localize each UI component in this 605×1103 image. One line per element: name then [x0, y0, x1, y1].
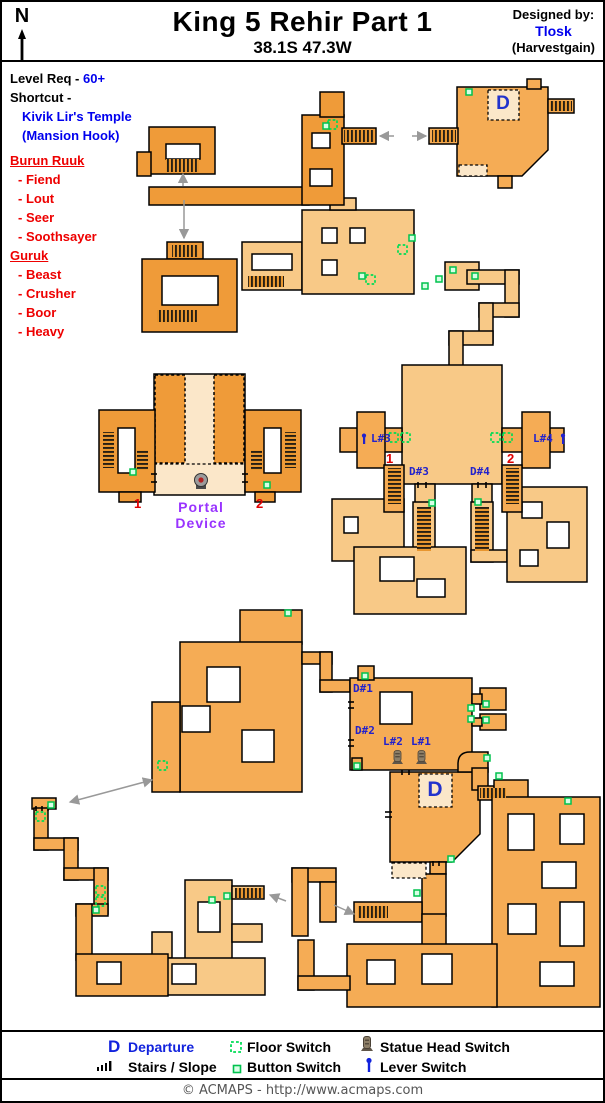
button-switch-icon	[450, 267, 456, 273]
landing-area	[392, 863, 426, 878]
legend-stairs-icon	[96, 1060, 114, 1076]
button-switch-icon	[466, 89, 472, 95]
dungeon-map	[2, 62, 605, 1032]
button-switch-icon	[468, 716, 474, 722]
door-label-d3: D#3	[409, 465, 429, 478]
legend-button-switch-icon	[232, 1061, 242, 1077]
button-switch-icon	[48, 802, 54, 808]
stairs-icon	[285, 432, 296, 468]
legend-floor-switch-label: Floor Switch	[247, 1039, 331, 1055]
departure-label-bottom: D	[418, 778, 452, 802]
legend-lever-switch-icon	[364, 1057, 374, 1076]
departure-label-top: D	[487, 93, 519, 115]
button-switch-icon	[483, 701, 489, 707]
stairs-icon	[235, 888, 263, 898]
button-switch-icon	[130, 469, 136, 475]
door-label-d1: D#1	[353, 682, 373, 695]
stairs-icon	[103, 432, 114, 468]
button-switch-icon	[429, 500, 435, 506]
button-switch-icon	[354, 763, 360, 769]
button-switch-icon	[285, 610, 291, 616]
button-switch-icon	[359, 273, 365, 279]
button-switch-icon	[496, 773, 502, 779]
button-switch-icon	[409, 235, 415, 241]
statue-head-icon	[416, 751, 427, 765]
stairs-icon	[137, 450, 148, 470]
stairs-icon	[251, 450, 262, 470]
button-switch-icon	[483, 717, 489, 723]
lever-label-l2: L#2	[383, 735, 403, 748]
marker-1: 1	[134, 496, 141, 511]
header: N King 5 Rehir Part 1 38.1S 47.3W Design…	[2, 2, 603, 62]
stairs-icon	[432, 130, 456, 142]
legend-floor-switch-icon	[230, 1040, 242, 1056]
lever-label-l4: L#4	[533, 432, 553, 445]
legend-lever-switch-label: Lever Switch	[380, 1059, 466, 1075]
legend-statue-head-label: Statue Head Switch	[380, 1039, 510, 1055]
stairs-icon	[550, 101, 572, 111]
landing-area	[459, 165, 487, 176]
button-switch-icon	[475, 499, 481, 505]
button-switch-icon	[422, 283, 428, 289]
legend-departure-label: Departure	[128, 1039, 194, 1055]
stairs-icon	[480, 788, 506, 798]
button-switch-icon	[472, 273, 478, 279]
stairs-icon	[248, 276, 284, 287]
door-label-d2: D#2	[355, 724, 375, 737]
button-switch-icon	[468, 705, 474, 711]
portal-device-icon	[195, 474, 208, 490]
button-switch-icon	[362, 673, 368, 679]
designer-block: Designed by: Tlosk (Harvestgain)	[512, 7, 595, 56]
stairs-icon	[172, 245, 198, 257]
legend-stairs-label: Stairs / Slope	[128, 1059, 217, 1075]
button-switch-icon	[414, 890, 420, 896]
legend: D Departure Floor Switch Statue Head Swi…	[2, 1030, 603, 1078]
button-switch-icon	[323, 123, 329, 129]
legend-statue-head-icon	[360, 1035, 374, 1055]
portal-device-label-2: Device	[160, 515, 242, 531]
legend-departure-icon: D	[108, 1037, 120, 1057]
legend-button-switch-label: Button Switch	[247, 1059, 341, 1075]
button-switch-icon	[209, 897, 215, 903]
button-switch-icon	[436, 276, 442, 282]
stairs-icon	[166, 159, 199, 172]
lever-label-l3: L#3	[371, 432, 391, 445]
stairs-icon	[344, 130, 374, 142]
map-page: N King 5 Rehir Part 1 38.1S 47.3W Design…	[0, 0, 605, 1103]
portal-device-label-1: Portal	[160, 499, 242, 515]
stairs-icon	[417, 507, 431, 551]
button-switch-icon	[565, 798, 571, 804]
marker-2: 2	[256, 496, 263, 511]
designed-by-label: Designed by:	[513, 7, 595, 22]
copyright-credit: © ACMAPS - http://www.acmaps.com	[182, 1083, 423, 1098]
footer: © ACMAPS - http://www.acmaps.com	[2, 1078, 603, 1103]
marker-1-stairs: 1	[386, 451, 393, 466]
button-switch-icon	[93, 907, 99, 913]
door-label-d4: D#4	[470, 465, 490, 478]
stairs-icon	[388, 468, 401, 504]
statue-head-icon	[392, 751, 403, 765]
designer-name: Tlosk	[535, 23, 572, 39]
button-switch-icon	[264, 482, 270, 488]
button-switch-icon	[448, 856, 454, 862]
stairs-icon	[157, 310, 197, 322]
lever-label-l1: L#1	[411, 735, 431, 748]
designer-server: (Harvestgain)	[512, 40, 595, 55]
stairs-icon	[506, 468, 519, 504]
button-switch-icon	[224, 893, 230, 899]
marker-2-stairs: 2	[507, 451, 514, 466]
stairs-icon	[358, 906, 388, 918]
stairs-icon	[475, 507, 489, 551]
button-switch-icon	[484, 755, 490, 761]
